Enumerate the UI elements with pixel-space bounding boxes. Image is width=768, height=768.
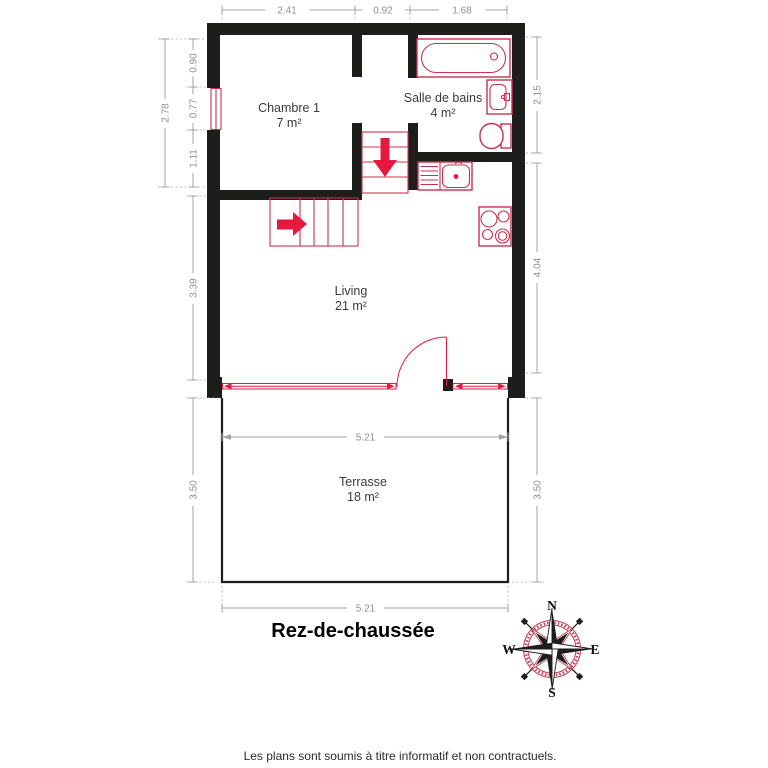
stairs-horizontal <box>270 198 358 246</box>
room-bains-name: Salle de bains <box>404 91 483 105</box>
window-left <box>205 88 221 130</box>
wall-stair-left <box>352 123 362 200</box>
room-living-area: 21 m² <box>335 299 367 313</box>
room-chambre-area: 7 m² <box>277 116 302 130</box>
wall-kitchen <box>418 152 512 162</box>
kitchen-sink <box>418 162 472 190</box>
sliding-glass-door-right <box>453 383 508 389</box>
compass-north-label: N <box>547 598 557 613</box>
compass-south-label: S <box>548 685 556 700</box>
dim-left-seg-1: 0.90 <box>189 53 200 73</box>
floor-plan-drawing: 2.41 0.92 1.68 2.78 0.90 0.77 1.11 3.39 … <box>0 0 768 768</box>
dim-right-bath: 2.15 <box>533 85 544 105</box>
disclaimer-text: Les plans sont soumis à titre informatif… <box>244 749 557 763</box>
walls <box>207 23 525 398</box>
wall-right <box>512 23 525 398</box>
compass-west-label: W <box>502 642 516 657</box>
stairs-vertical <box>362 132 408 193</box>
dim-terrace-left: 3.50 <box>189 480 200 500</box>
washbasin <box>487 80 512 114</box>
room-chambre-name: Chambre 1 <box>258 101 320 115</box>
arrow-down-icon <box>373 138 397 177</box>
wall-left-lower <box>207 130 220 398</box>
arrow-right-icon <box>277 212 307 236</box>
compass-east-label: E <box>590 642 599 657</box>
dim-terrace-top: 5.21 <box>356 433 376 444</box>
dim-terrace-bottom: 5.21 <box>356 604 376 615</box>
floor-plan-page: 2.41 0.92 1.68 2.78 0.90 0.77 1.11 3.39 … <box>0 0 768 768</box>
wall-bottom-stub-right <box>508 377 525 398</box>
bathtub <box>417 39 510 77</box>
dim-top-2: 0.92 <box>373 6 393 17</box>
dim-terrace-right: 3.50 <box>533 480 544 500</box>
wall-bathroom-left-lower <box>408 123 418 190</box>
entry-door <box>397 337 447 387</box>
dim-top-3: 1.68 <box>452 6 472 17</box>
room-terrasse-name: Terrasse <box>339 475 387 489</box>
dim-right-living: 4.04 <box>533 257 544 277</box>
compass-rose-icon: N E S W <box>502 598 599 700</box>
room-living-name: Living <box>335 284 368 298</box>
dim-left-seg-2: 0.77 <box>189 98 200 118</box>
room-bains-area: 4 m² <box>431 106 456 120</box>
cooktop <box>479 207 511 246</box>
wall-left-upper <box>207 23 220 88</box>
wall-chambre-right-stub <box>352 35 362 77</box>
dim-left-seg-3: 1.11 <box>189 149 200 168</box>
toilet <box>480 124 511 149</box>
page-title: Rez-de-chaussée <box>271 620 434 642</box>
dim-top-1: 2.41 <box>277 6 297 17</box>
dim-left-living: 3.39 <box>189 278 200 298</box>
sliding-glass-door-left <box>223 383 397 389</box>
door-post <box>443 379 453 391</box>
wall-bottom-stub-left <box>207 377 222 398</box>
room-terrasse-area: 18 m² <box>347 490 379 504</box>
wall-top <box>207 23 525 35</box>
dim-left-total: 2.78 <box>161 103 172 123</box>
